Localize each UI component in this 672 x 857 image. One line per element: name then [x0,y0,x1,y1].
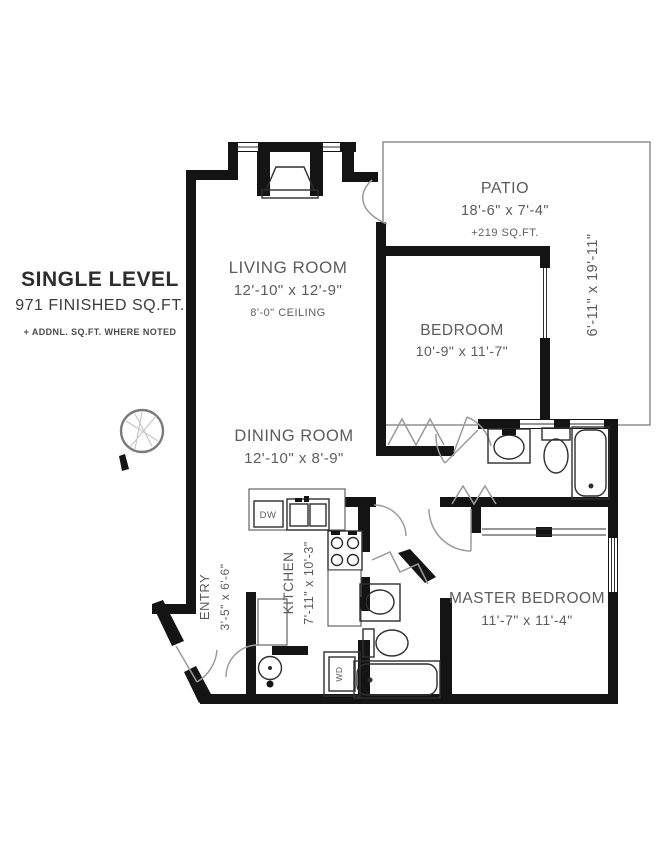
living-room-label: LIVING ROOM [229,258,348,277]
entry-dims: 3'-5" x 6'-6" [218,564,232,631]
patio-label: PATIO [481,180,529,197]
bath1-fixtures [488,427,609,499]
master-door-arc [429,509,471,551]
master-bedroom-label: MASTER BEDROOM [449,590,605,607]
plan-note: + ADDNL. SQ.FT. WHERE NOTED [24,327,177,337]
entry-label: ENTRY [197,574,212,620]
patio-dims: 18'-6" x 7'-4" [461,203,549,219]
dining-room-label: DINING ROOM [234,427,353,445]
living-room-ceiling: 8'-0" CEILING [250,307,325,319]
plan-title: SINGLE LEVEL [21,268,179,291]
plan-area: 971 FINISHED SQ.FT. [15,297,185,314]
bedroom-dims: 10'-9" x 11'-7" [416,343,509,359]
hall-door-arc [374,505,406,536]
fireplace-icon [262,167,318,198]
master-bedroom-dims: 11'-7" x 11'-4" [481,612,573,628]
living-room-dims: 12'-10" x 12'-9" [234,282,343,299]
washer-dryer-label: WD [334,666,344,681]
kitchen-label: KITCHEN [281,552,296,615]
bath1-toilet-icon [542,428,570,440]
patio-extra-area: +219 SQ.FT. [471,227,539,239]
bedroom-label: BEDROOM [420,322,504,339]
dining-room-dims: 12'-10" x 8'-9" [244,450,344,467]
floor-plan-canvas: SINGLE LEVEL 971 FINISHED SQ.FT. + ADDNL… [0,0,672,857]
dishwasher-label: DW [260,510,277,521]
floor-plan-page: SINGLE LEVEL 971 FINISHED SQ.FT. + ADDNL… [0,0,672,857]
patio-side-dims: 6'-11" x 19'-11" [585,233,601,336]
counter-2 [328,570,361,626]
kitchen-dims: 7'-11" x 10'-3" [302,541,316,624]
bath2-door-bifold [372,552,428,584]
compass-icon [119,410,163,471]
compass-needle [119,454,129,471]
